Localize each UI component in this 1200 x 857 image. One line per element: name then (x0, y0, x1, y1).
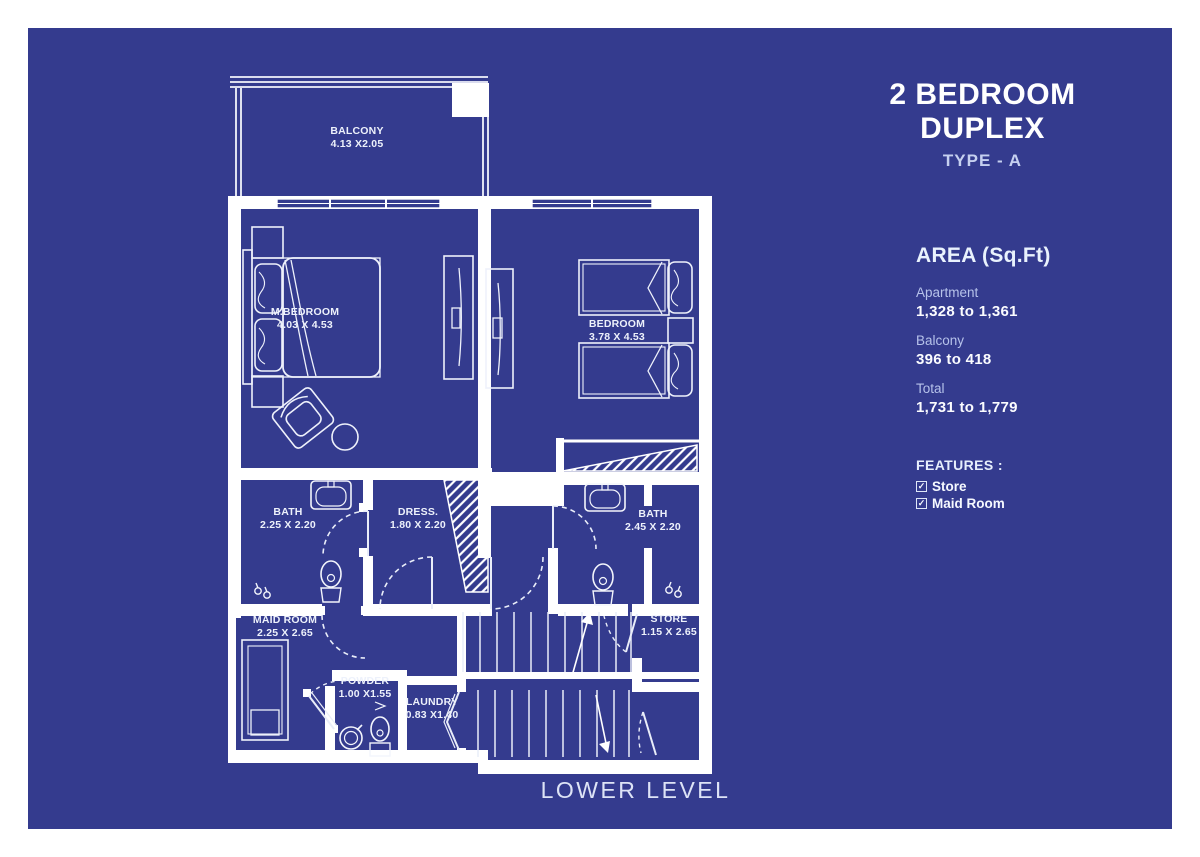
checkbox-icon: ✓ (916, 498, 927, 509)
room-dims: 1.15 X 2.65 (630, 626, 708, 639)
features-block: FEATURES : ✓ Store ✓ Maid Room (916, 457, 1146, 512)
dress-wardrobe-hatch (444, 480, 488, 592)
area-heading: AREA (Sq.Ft) (916, 244, 1146, 268)
room-name: LAUNDRY (397, 696, 467, 709)
room-name: STORE (630, 613, 708, 626)
window-1 (277, 199, 440, 208)
label-maid-room: MAID ROOM 2.25 X 2.65 (238, 614, 332, 640)
feature-label: Store (932, 478, 967, 495)
label-bath-right: BATH 2.45 X 2.20 (607, 508, 699, 534)
room-dims: 1.80 X 2.20 (372, 519, 464, 532)
room-dims: 3.78 X 4.53 (555, 331, 679, 344)
label-mbedroom: M.BEDROOM 4.03 X 4.53 (238, 306, 372, 332)
powder-basin-icon (340, 725, 362, 749)
area-item-total: Total 1,731 to 1,779 (916, 381, 1146, 416)
stairs-direction-arrows (572, 612, 610, 753)
room-name: BATH (243, 506, 333, 519)
features-heading: FEATURES : (916, 457, 1146, 473)
label-store: STORE 1.15 X 2.65 (630, 613, 708, 639)
label-bedroom: BEDROOM 3.78 X 4.53 (555, 318, 679, 344)
room-dims: 2.25 X 2.20 (243, 519, 333, 532)
label-bath-left: BATH 2.25 X 2.20 (243, 506, 333, 532)
area-item-apartment: Apartment 1,328 to 1,361 (916, 285, 1146, 320)
room-dims: 4.03 X 4.53 (238, 319, 372, 332)
single-bed-1-icon (579, 260, 692, 315)
stair-void-hatch (563, 445, 697, 471)
hooks-right-icon (666, 582, 681, 597)
room-name: M.BEDROOM (238, 306, 372, 319)
toilet-left-icon (321, 561, 341, 602)
room-name: BATH (607, 508, 699, 521)
page-subtitle: TYPE - A (825, 151, 1140, 171)
sink-left-icon (311, 481, 351, 509)
area-value: 1,328 to 1,361 (916, 303, 1146, 320)
hooks-left-icon (255, 583, 270, 598)
room-dims: 4.13 X2.05 (305, 138, 409, 151)
window-2 (532, 199, 652, 208)
floorplan-page: BALCONY 4.13 X2.05 M.BEDROOM 4.03 X 4.53… (0, 0, 1200, 857)
feature-item-maid-room: ✓ Maid Room (916, 495, 1146, 512)
room-name: BALCONY (305, 125, 409, 138)
area-value: 1,731 to 1,779 (916, 399, 1146, 416)
area-label: Total (916, 381, 1146, 396)
feature-item-store: ✓ Store (916, 478, 1146, 495)
checkbox-icon: ✓ (916, 481, 927, 492)
feature-label: Maid Room (932, 495, 1005, 512)
wardrobe-master-icon (444, 256, 473, 379)
side-table-icon (332, 424, 358, 450)
area-item-balcony: Balcony 396 to 418 (916, 333, 1146, 368)
label-powder: POWDER 1.00 X1.55 (326, 675, 404, 701)
armchair-icon (271, 386, 336, 450)
room-name: BEDROOM (555, 318, 679, 331)
sink-right-icon (585, 484, 625, 511)
label-laundry: LAUNDRY 0.83 X1.40 (397, 696, 467, 722)
room-name: POWDER (326, 675, 404, 688)
room-dims: 1.00 X1.55 (326, 688, 404, 701)
area-block: AREA (Sq.Ft) Apartment 1,328 to 1,361 Ba… (916, 244, 1146, 429)
page-title: 2 BEDROOM DUPLEX (825, 78, 1140, 146)
room-dims: 2.25 X 2.65 (238, 627, 332, 640)
area-value: 396 to 418 (916, 351, 1146, 368)
balcony-column (452, 83, 489, 117)
shower-partition (644, 478, 652, 606)
room-name: MAID ROOM (238, 614, 332, 627)
level-label: LOWER LEVEL (508, 777, 763, 804)
title-block: 2 BEDROOM DUPLEX TYPE - A (825, 78, 1140, 171)
powder-toilet-icon (370, 702, 390, 756)
area-label: Apartment (916, 285, 1146, 300)
maid-bed-icon (242, 640, 288, 740)
stairs-upper-flight (463, 612, 631, 672)
label-dress: DRESS. 1.80 X 2.20 (372, 506, 464, 532)
single-bed-2-icon (579, 343, 692, 398)
toilet-right-icon (593, 564, 613, 605)
area-label: Balcony (916, 333, 1146, 348)
room-dims: 0.83 X1.40 (397, 709, 467, 722)
room-dims: 2.45 X 2.20 (607, 521, 699, 534)
label-balcony: BALCONY 4.13 X2.05 (305, 125, 409, 151)
room-name: DRESS. (372, 506, 464, 519)
